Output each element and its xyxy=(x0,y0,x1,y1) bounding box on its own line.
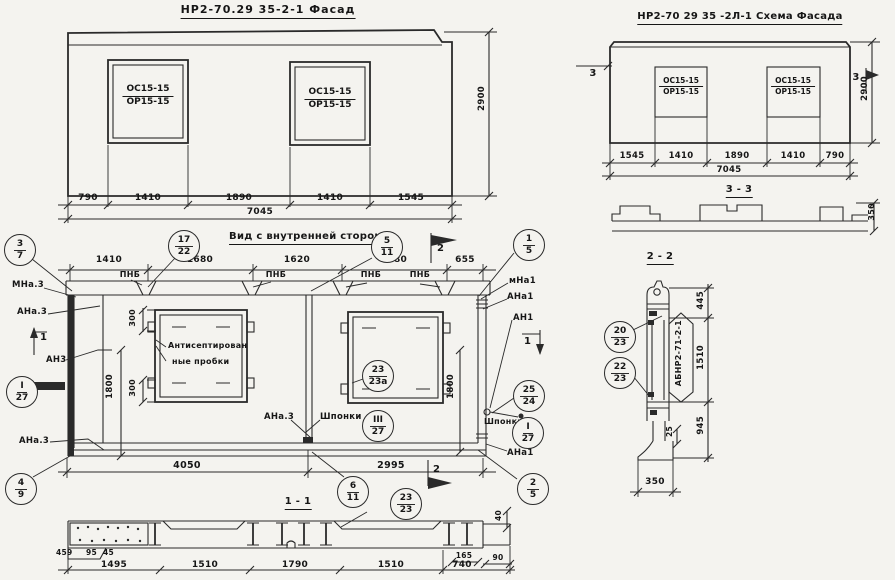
inner-view-title: Вид с внутренней стороны xyxy=(229,231,391,245)
dim-label: 1410 xyxy=(669,151,694,161)
dim-label: 790 xyxy=(826,151,845,161)
callout-23-23a: 2323а xyxy=(362,360,394,392)
dim-label: 1545 xyxy=(620,151,645,161)
dim-label: 90 xyxy=(492,553,503,562)
dim-label: 655 xyxy=(455,255,475,265)
callout-4-9: 49 xyxy=(5,473,37,505)
panel-stamp: АБНР2-71-2-1 xyxy=(674,320,683,386)
window-mark-top: ОС15-15 xyxy=(659,76,703,87)
schema-window1-mark: ОС15-15 ОР15-15 xyxy=(659,76,703,97)
dim-label: 1410 xyxy=(781,151,806,161)
dim-label: 350 xyxy=(867,203,876,221)
dim-label: 1510 xyxy=(696,345,706,370)
note-line1: Антисептирован xyxy=(168,341,247,350)
dim-label: 350 xyxy=(645,477,665,487)
dim-label: 1410 xyxy=(135,193,161,203)
section-3-3-label: 3 - 3 xyxy=(726,184,753,198)
callout-III-27: III27 xyxy=(362,410,394,442)
dim-label: 1790 xyxy=(282,560,308,570)
dim-label: 1495 xyxy=(101,560,127,570)
pnb-label: ПНБ xyxy=(120,270,140,279)
callout-1-5: 15 xyxy=(513,229,545,261)
part-label-mna3: МНа.3 xyxy=(12,280,44,290)
section-marker-1-left: 1 xyxy=(40,332,47,343)
dim-label: 790 xyxy=(78,193,98,203)
dim-label: 4050 xyxy=(173,460,201,471)
window-mark-top: ОС15-15 xyxy=(771,76,815,87)
section-2-2-label: 2 - 2 xyxy=(647,251,674,265)
callout-3-7: 37 xyxy=(4,234,36,266)
section-marker-1-right: 1 xyxy=(524,336,531,347)
part-label-ana3-low: АНа.3 xyxy=(19,436,49,446)
dim-label: 300 xyxy=(128,309,137,327)
section-1-1-label: 1 - 1 xyxy=(285,496,312,510)
callout-5-11: 511 xyxy=(371,231,403,263)
dim-label: 1890 xyxy=(725,151,750,161)
part-label-an3: АН3 xyxy=(46,355,67,365)
schema-window2-mark: ОС15-15 ОР15-15 xyxy=(771,76,815,97)
dim-label: 1890 xyxy=(226,193,252,203)
section-marker-2-bottom: 2 xyxy=(433,464,440,475)
callout-23-23: 2323 xyxy=(390,488,422,520)
dim-label: 1545 xyxy=(398,193,424,203)
window-mark-bottom: ОР15-15 xyxy=(308,100,351,112)
dim-label: 945 xyxy=(696,416,706,435)
dim-label-small: 95 xyxy=(86,548,97,557)
dim-total: 7045 xyxy=(247,207,273,217)
pnb-label: ПНБ xyxy=(361,270,381,279)
facade-window1-mark: ОС15-15 ОР15-15 xyxy=(122,84,173,108)
dim-height: 2900 xyxy=(477,86,487,111)
part-label-an1: АН1 xyxy=(513,313,534,323)
part-label-ana3-mid: АНа.3 xyxy=(264,412,294,422)
callout-I-27-right: I27 xyxy=(512,417,544,449)
dim-label: 1510 xyxy=(378,560,404,570)
pnb-label: ПНБ xyxy=(410,270,430,279)
dim-label: 1410 xyxy=(317,193,343,203)
dim-label: 1620 xyxy=(284,255,310,265)
part-label-ana1-low: АНа1 xyxy=(507,448,534,458)
dim-label: 740 xyxy=(452,560,472,570)
window-mark-bottom: ОР15-15 xyxy=(126,97,169,109)
callout-20-23: 2023 xyxy=(604,321,636,353)
facade-title: НР2-70.29 35-2-1 Фасад xyxy=(181,3,356,19)
dim-label: 165 xyxy=(456,551,473,560)
dim-label-small: 459 xyxy=(56,548,73,557)
dim-label: 1800 xyxy=(446,374,456,399)
callout-6-11: 611 xyxy=(337,476,369,508)
callout-I-27: I27 xyxy=(6,376,38,408)
window-mark-top: ОС15-15 xyxy=(122,84,173,97)
section-2-2-drawing xyxy=(630,281,714,497)
window-mark-bottom: ОР15-15 xyxy=(663,87,699,97)
callout-22-23: 2223 xyxy=(604,357,636,389)
label-shponki-left: Шпонки xyxy=(320,412,362,422)
dim-label: 1410 xyxy=(96,255,122,265)
dim-label: 1800 xyxy=(105,374,115,399)
facade-window2-mark: ОС15-15 ОР15-15 xyxy=(304,87,355,111)
section-marker-2-top: 2 xyxy=(437,243,444,254)
dim-label: 40 xyxy=(494,510,503,521)
dim-label-small: 45 xyxy=(103,548,114,557)
callout-17-22: 1722 xyxy=(168,230,200,262)
facade-panel-drawing xyxy=(58,28,497,223)
dim-total: 7045 xyxy=(717,165,742,175)
note-line2: ные пробки xyxy=(172,357,229,366)
section-marker-3-right: 3 xyxy=(852,72,859,83)
part-label-ana3: АНа.3 xyxy=(17,307,47,317)
dim-label: 25 xyxy=(665,426,674,437)
dim-label: 2995 xyxy=(377,460,405,471)
window-mark-top: ОС15-15 xyxy=(304,87,355,100)
dim-label: 445 xyxy=(696,291,706,310)
callout-2-5: 25 xyxy=(517,473,549,505)
section-marker-3-left: 3 xyxy=(589,68,596,79)
callout-25-24: 2524 xyxy=(513,380,545,412)
dim-label: 300 xyxy=(128,379,137,397)
part-label-mna1: мНа1 xyxy=(509,276,536,286)
dim-label: 1510 xyxy=(192,560,218,570)
section-3-3-drawing xyxy=(612,199,880,235)
pnb-label: ПНБ xyxy=(266,270,286,279)
window-mark-bottom: ОР15-15 xyxy=(775,87,811,97)
part-label-ana1: АНа1 xyxy=(507,292,534,302)
schema-title: НР2-70 29 35 -2Л-1 Схема Фасада xyxy=(637,11,842,25)
dim-height: 2900 xyxy=(860,76,870,101)
blueprint-page: НР2-70.29 35-2-1 Фасад ОС15-15 ОР15-15 О… xyxy=(0,0,895,580)
